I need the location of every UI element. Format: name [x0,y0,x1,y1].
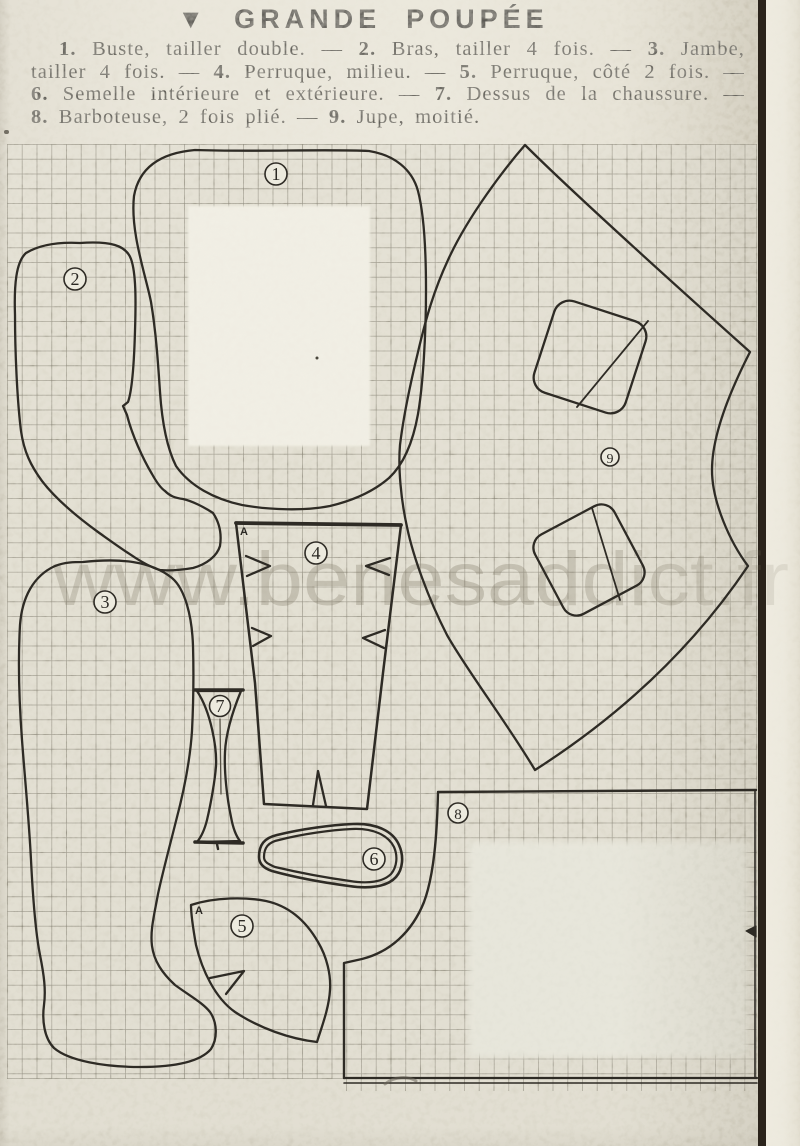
svg-text:4: 4 [312,543,321,563]
svg-text:1: 1 [272,164,281,184]
svg-text:8: 8 [454,807,462,823]
svg-text:3: 3 [101,592,110,612]
svg-text:5: 5 [238,916,247,936]
svg-text:A: A [240,526,248,538]
svg-text:2: 2 [71,269,80,289]
svg-text:6: 6 [370,849,379,869]
svg-text:www.benesaddict.fr: www.benesaddict.fr [52,537,789,622]
svg-text:7: 7 [216,696,225,716]
svg-text:9: 9 [607,452,614,467]
svg-text:A: A [195,905,203,917]
